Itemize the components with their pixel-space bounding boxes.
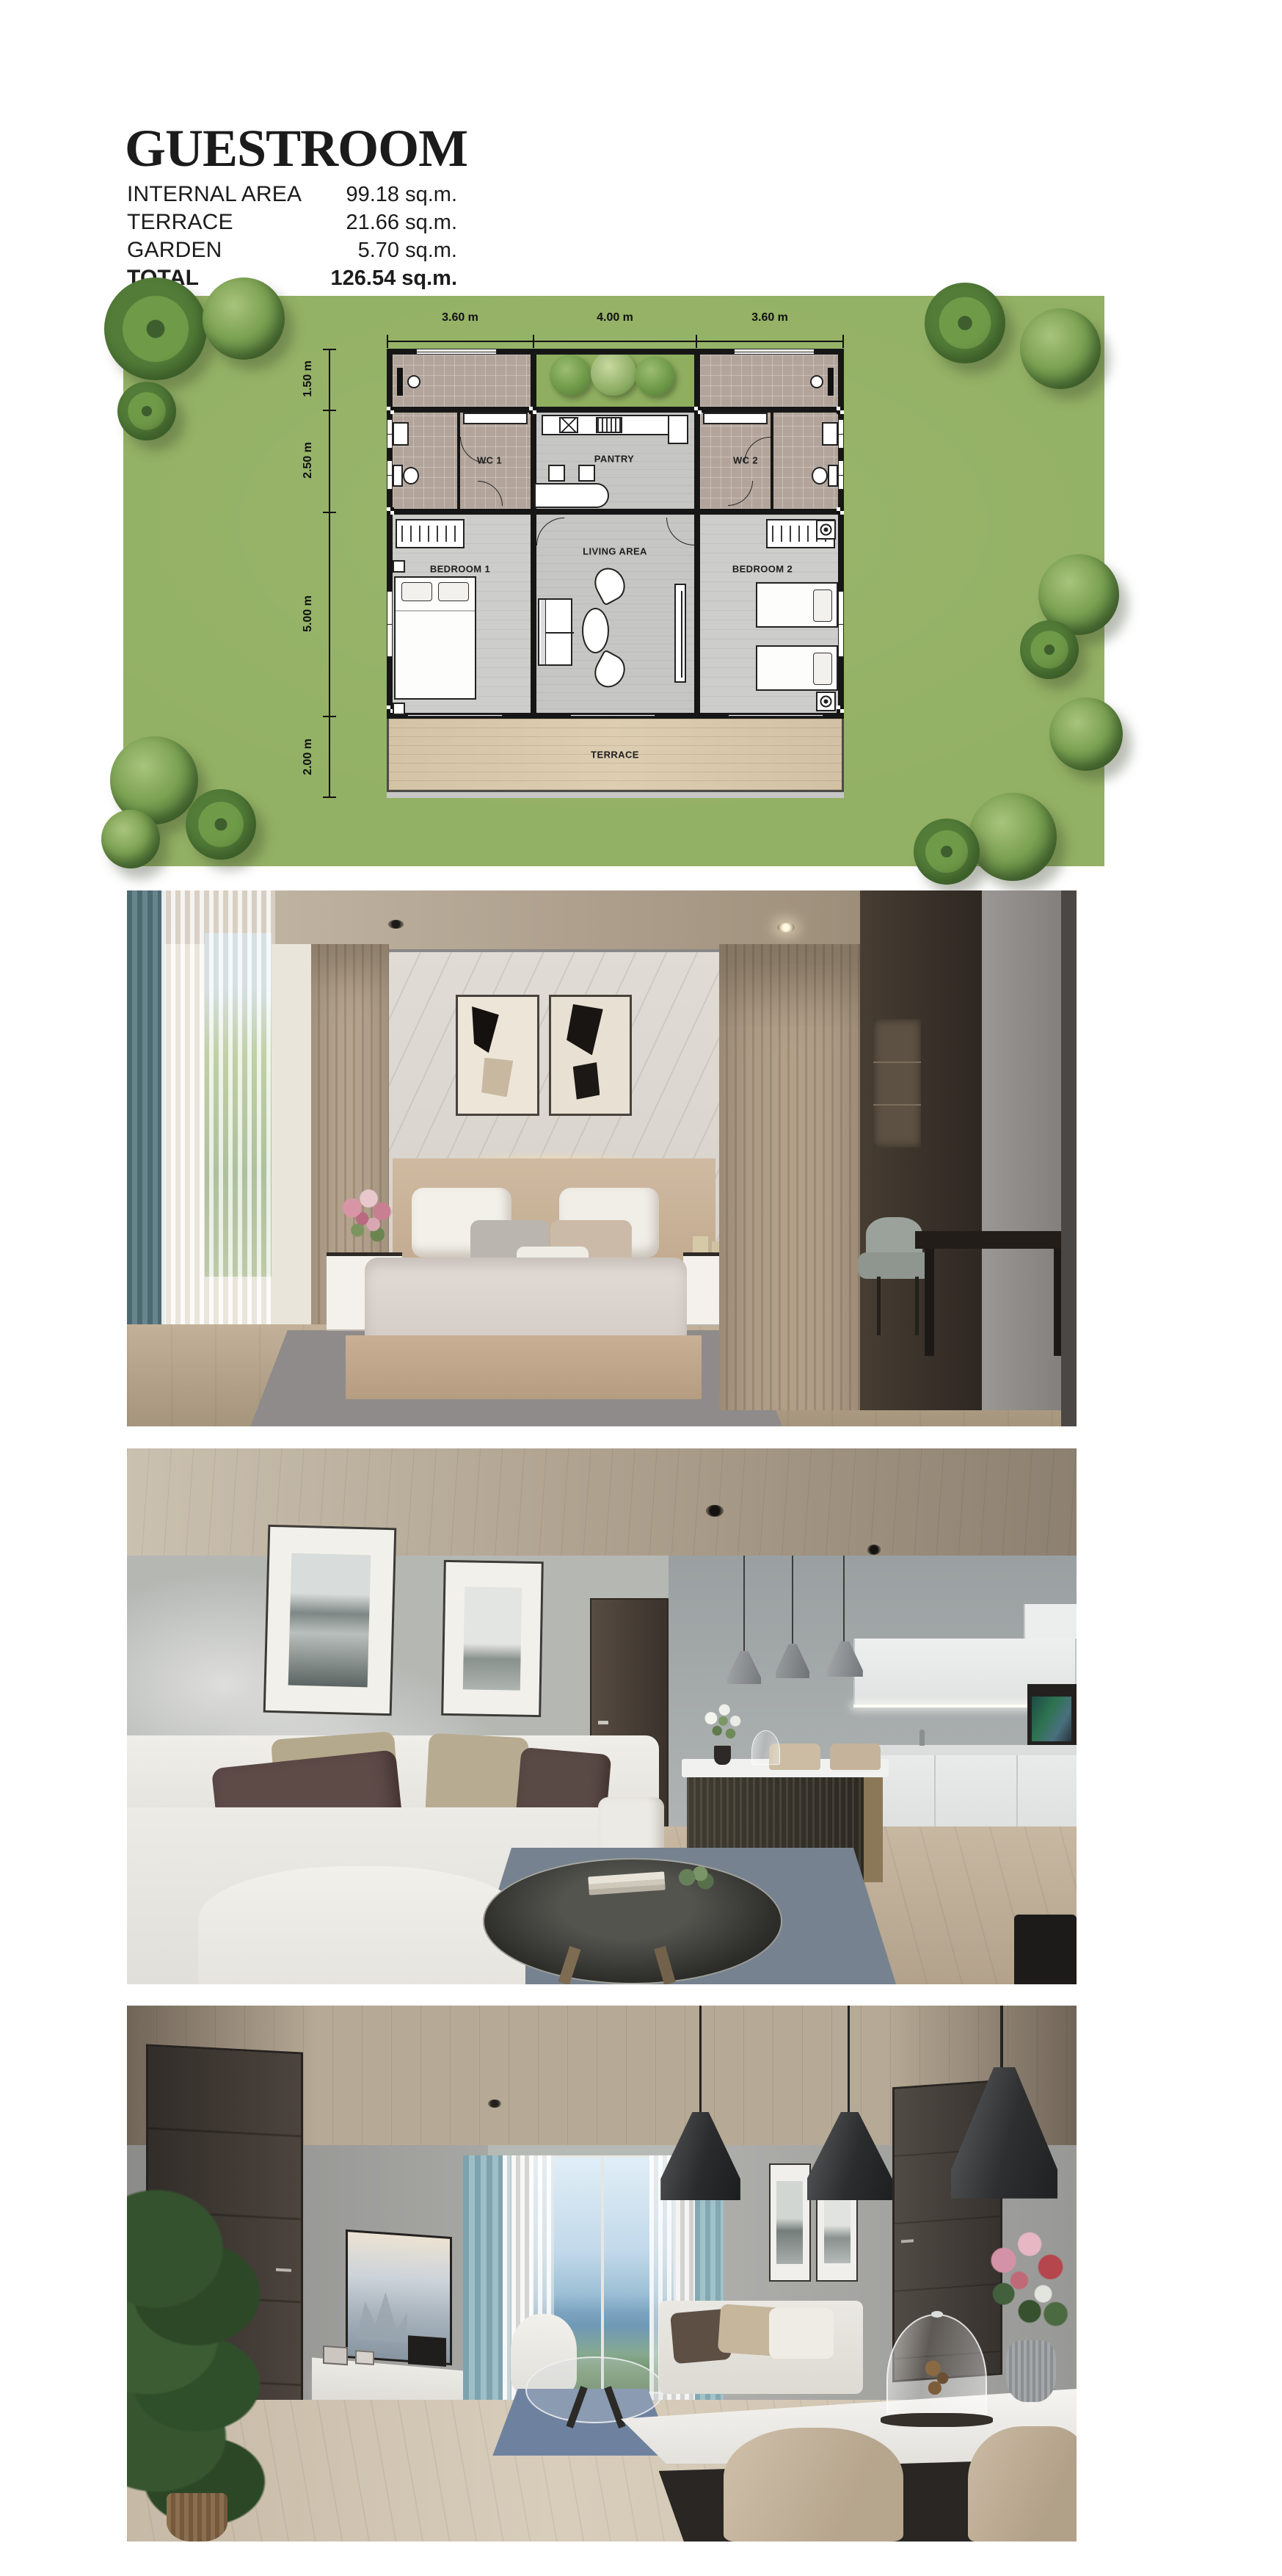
artwork-frame (549, 995, 633, 1115)
photo-frames-decor (323, 2345, 348, 2365)
pendant-cord (843, 1556, 845, 1641)
dining-chair (724, 2428, 904, 2541)
toilet-icon (828, 465, 838, 487)
column-marker (694, 407, 702, 414)
shower-bar-icon (397, 368, 403, 396)
sink-icon (393, 422, 409, 446)
bush-icon (591, 350, 636, 396)
wc2-partition (771, 413, 773, 509)
wall-light-icon (393, 703, 405, 715)
faucet-icon (919, 1730, 924, 1746)
column-marker (387, 507, 394, 515)
downlight-icon (388, 920, 404, 929)
area-label: INTERNAL AREA (127, 182, 302, 207)
dim-tick (696, 335, 697, 348)
desk (915, 1231, 1077, 1249)
dim-tick (323, 716, 336, 717)
wall (694, 349, 700, 719)
column-marker (837, 507, 844, 515)
terrace-edge (387, 719, 389, 792)
duvet (365, 1258, 688, 1343)
page-title: GUESTROOM (125, 122, 467, 175)
toilet-bowl-icon (812, 467, 828, 485)
sliding-door (570, 714, 655, 717)
sofa (538, 598, 572, 666)
window (838, 591, 844, 657)
wardrobe (396, 519, 465, 548)
room-label-living: LIVING AREA (583, 546, 647, 557)
dimension-line-top (387, 341, 844, 342)
dark-object (1014, 1915, 1077, 1984)
dim-left-2: 2.50 m (302, 442, 315, 479)
wall (387, 349, 393, 719)
room-label-wc1: WC 1 (477, 455, 502, 466)
pendant-cord (743, 1556, 745, 1652)
island-side-wood (864, 1777, 883, 1882)
cloche-knob-icon (931, 2311, 943, 2317)
tree-icon (101, 810, 160, 868)
sliding-door (407, 714, 503, 717)
dimension-line-left (329, 349, 330, 798)
dark-frame-edge (1061, 890, 1077, 1426)
dim-top-3: 3.60 m (751, 311, 788, 324)
pendant-cord (699, 2006, 702, 2113)
stool-icon (578, 465, 595, 482)
terrace-edge (842, 719, 844, 792)
single-bed (756, 645, 838, 691)
desk-chair-seat (858, 1252, 934, 1280)
dim-tick (323, 797, 336, 798)
bush-icon (635, 356, 674, 396)
window (838, 460, 844, 490)
downlight-icon (706, 1505, 723, 1517)
area-table: INTERNAL AREA 99.18 sq.m. TERRACE 21.66 … (127, 182, 457, 294)
bedroom-render-photo (127, 890, 1077, 1426)
kitchen-sink-icon (559, 417, 578, 433)
floor-plan: WC 1 PANTRY WC 2 BEDROOM 1 LIVING AREA B… (387, 349, 844, 798)
flower-bouquet (972, 2220, 1077, 2354)
window (734, 349, 815, 355)
bush-icon (550, 355, 591, 396)
toilet-bowl-icon (403, 467, 419, 485)
column-marker (837, 407, 844, 414)
island-counter (534, 483, 609, 508)
tree-icon (1049, 697, 1123, 771)
tree-icon (925, 283, 1005, 363)
area-row-terrace: TERRACE 21.66 sq.m. (127, 210, 457, 238)
dim-top-2: 4.00 m (597, 311, 633, 324)
wc1-partition (457, 413, 460, 509)
wall (387, 509, 844, 515)
chair-legs (915, 1277, 919, 1335)
artwork-frame (263, 1525, 396, 1716)
photo-frames-decor (355, 2350, 374, 2365)
desk-leg (925, 1249, 934, 1356)
area-row-internal: INTERNAL AREA 99.18 sq.m. (127, 182, 457, 210)
artwork-frame (769, 2163, 811, 2282)
artwork-frame (441, 1560, 544, 1717)
brochure-page: GUESTROOM INTERNAL AREA 99.18 sq.m. TERR… (0, 0, 1282, 2576)
tree-icon (1020, 308, 1101, 389)
pendant-cord (848, 2006, 850, 2113)
shower-head-icon (407, 375, 420, 388)
dim-top-1: 3.60 m (442, 311, 478, 324)
tree-icon (186, 789, 256, 860)
pendant-cord (792, 1556, 793, 1644)
wall (531, 349, 536, 719)
room-label-pantry: PANTRY (594, 454, 634, 465)
armchair (198, 1866, 525, 1984)
dim-tick (387, 335, 388, 348)
shelf-niche (873, 1019, 921, 1147)
bar-stool (830, 1744, 881, 1771)
area-label: TERRACE (127, 210, 233, 235)
tree-icon (117, 382, 176, 440)
wc1-floor (393, 413, 531, 509)
shower-bar-icon (828, 368, 834, 396)
artwork-frame (456, 995, 539, 1115)
pendant-cord (1000, 2006, 1002, 2070)
double-bed (394, 576, 476, 700)
cloche-base (881, 2413, 993, 2427)
shower-head-icon (810, 375, 823, 388)
window (838, 419, 844, 449)
living-dining-render-photo (127, 2006, 1077, 2541)
column-marker (529, 407, 536, 414)
toilet-icon (393, 465, 403, 487)
room-label-terrace: TERRACE (591, 750, 639, 761)
tree-icon (969, 793, 1057, 881)
vase (714, 1746, 731, 1765)
door-handle-icon (276, 2268, 291, 2273)
flower-bouquet (332, 1183, 399, 1255)
speaker-icon (408, 2335, 446, 2367)
area-value: 5.70 sq.m. (358, 239, 457, 263)
room-label-bedroom1: BEDROOM 1 (430, 564, 490, 575)
vanity-counter (463, 413, 528, 424)
chair-legs (877, 1277, 881, 1335)
window (387, 591, 393, 657)
tree-icon (203, 277, 285, 360)
kitchen-counter (853, 1745, 1077, 1756)
area-row-garden: GARDEN 5.70 sq.m. (127, 238, 457, 266)
dim-tick (323, 349, 336, 350)
wall (387, 407, 844, 413)
dim-tick (323, 512, 336, 513)
dim-left-3: 5.00 m (302, 595, 315, 632)
downlight-icon (777, 923, 794, 932)
hob-icon (596, 417, 622, 433)
area-value: 21.66 sq.m. (346, 211, 457, 235)
vanity-counter (703, 413, 768, 424)
tree-icon (1020, 620, 1079, 679)
window (416, 349, 497, 355)
floor-plan-garden: 3.60 m 4.00 m 3.60 m 1.50 m 2.50 m 5.00 … (123, 296, 1104, 866)
area-value: 99.18 sq.m. (346, 183, 457, 207)
living-kitchen-render-photo (127, 1448, 1077, 1984)
area-value: 126.54 sq.m. (331, 266, 458, 291)
sofa-pillow (769, 2308, 834, 2359)
tree-icon (104, 277, 207, 380)
window (387, 419, 393, 449)
column-marker (387, 407, 394, 414)
stool-icon (548, 465, 565, 482)
coffee-table-glass (525, 2357, 664, 2423)
dim-tick (323, 410, 336, 411)
tree-icon (914, 819, 980, 885)
dim-left-1: 1.50 m (302, 360, 315, 397)
table-plant (669, 1866, 721, 1891)
door-handle-icon (598, 1721, 608, 1724)
room-label-wc2: WC 2 (733, 455, 758, 466)
area-label: GARDEN (127, 238, 222, 263)
oval-table (582, 608, 609, 653)
plant-leaves (127, 2166, 269, 2541)
wall (838, 349, 844, 719)
wall-light-icon (393, 560, 405, 573)
door-handle-icon (901, 2239, 914, 2243)
fridge-icon (668, 415, 688, 444)
vase (1006, 2340, 1055, 2402)
column-marker (837, 705, 844, 713)
sink-icon (822, 422, 838, 446)
dried-flowers (917, 2354, 956, 2402)
dining-chair (968, 2426, 1077, 2541)
tv-console (674, 584, 686, 683)
ceiling-speaker-icon (816, 692, 836, 711)
dim-tick (533, 335, 534, 348)
room-label-bedroom2: BEDROOM 2 (732, 564, 793, 575)
bed-base (346, 1335, 702, 1400)
oven-icon (1027, 1684, 1077, 1754)
window (387, 460, 393, 490)
ceiling-speaker-icon (816, 520, 836, 540)
sliding-door (728, 714, 823, 717)
downlight-icon (867, 1545, 881, 1554)
terrace-edge (387, 790, 844, 792)
slat-panel (719, 944, 862, 1410)
dim-tick (842, 335, 844, 348)
dim-left-4: 2.00 m (302, 739, 315, 775)
single-bed (756, 582, 838, 628)
plant-pot (167, 2493, 227, 2541)
candles (693, 1236, 708, 1252)
